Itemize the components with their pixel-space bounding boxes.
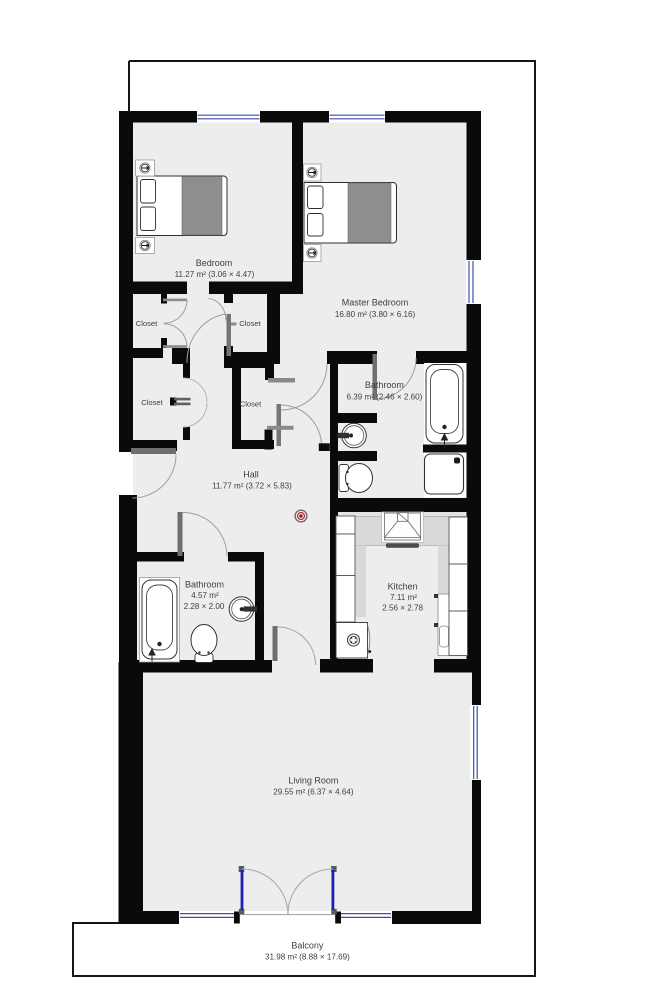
svg-text:Living Room: Living Room xyxy=(288,776,338,786)
svg-text:11.77 m² (3.72 × 5.83): 11.77 m² (3.72 × 5.83) xyxy=(212,481,292,490)
svg-text:2.28 × 2.00: 2.28 × 2.00 xyxy=(184,602,225,611)
svg-text:Closet: Closet xyxy=(240,399,262,408)
svg-text:Master Bedroom: Master Bedroom xyxy=(342,297,409,307)
svg-text:2.56 × 2.78: 2.56 × 2.78 xyxy=(382,604,423,613)
svg-text:Bedroom: Bedroom xyxy=(196,258,233,268)
svg-text:4.57 m²: 4.57 m² xyxy=(191,591,219,600)
svg-text:6.39 m² (2.46 × 2.60): 6.39 m² (2.46 × 2.60) xyxy=(346,392,422,401)
svg-text:Hall: Hall xyxy=(243,469,259,479)
svg-text:16.80 m² (3.80 × 6.16): 16.80 m² (3.80 × 6.16) xyxy=(335,310,416,319)
svg-text:31.98 m² (8.88 × 17.69): 31.98 m² (8.88 × 17.69) xyxy=(265,952,350,961)
svg-text:11.27 m² (3.06 × 4.47): 11.27 m² (3.06 × 4.47) xyxy=(175,270,255,279)
svg-text:Kitchen: Kitchen xyxy=(388,581,418,591)
svg-text:Closet: Closet xyxy=(239,319,261,328)
svg-text:Balcony: Balcony xyxy=(291,941,324,951)
svg-text:29.55 m² (6.37 × 4.64): 29.55 m² (6.37 × 4.64) xyxy=(273,788,354,797)
svg-text:Bathroom: Bathroom xyxy=(365,380,404,390)
svg-text:Closet: Closet xyxy=(141,398,163,407)
svg-text:Bathroom: Bathroom xyxy=(185,580,224,590)
svg-text:Closet: Closet xyxy=(136,319,158,328)
svg-text:7.11 m²: 7.11 m² xyxy=(390,593,417,602)
